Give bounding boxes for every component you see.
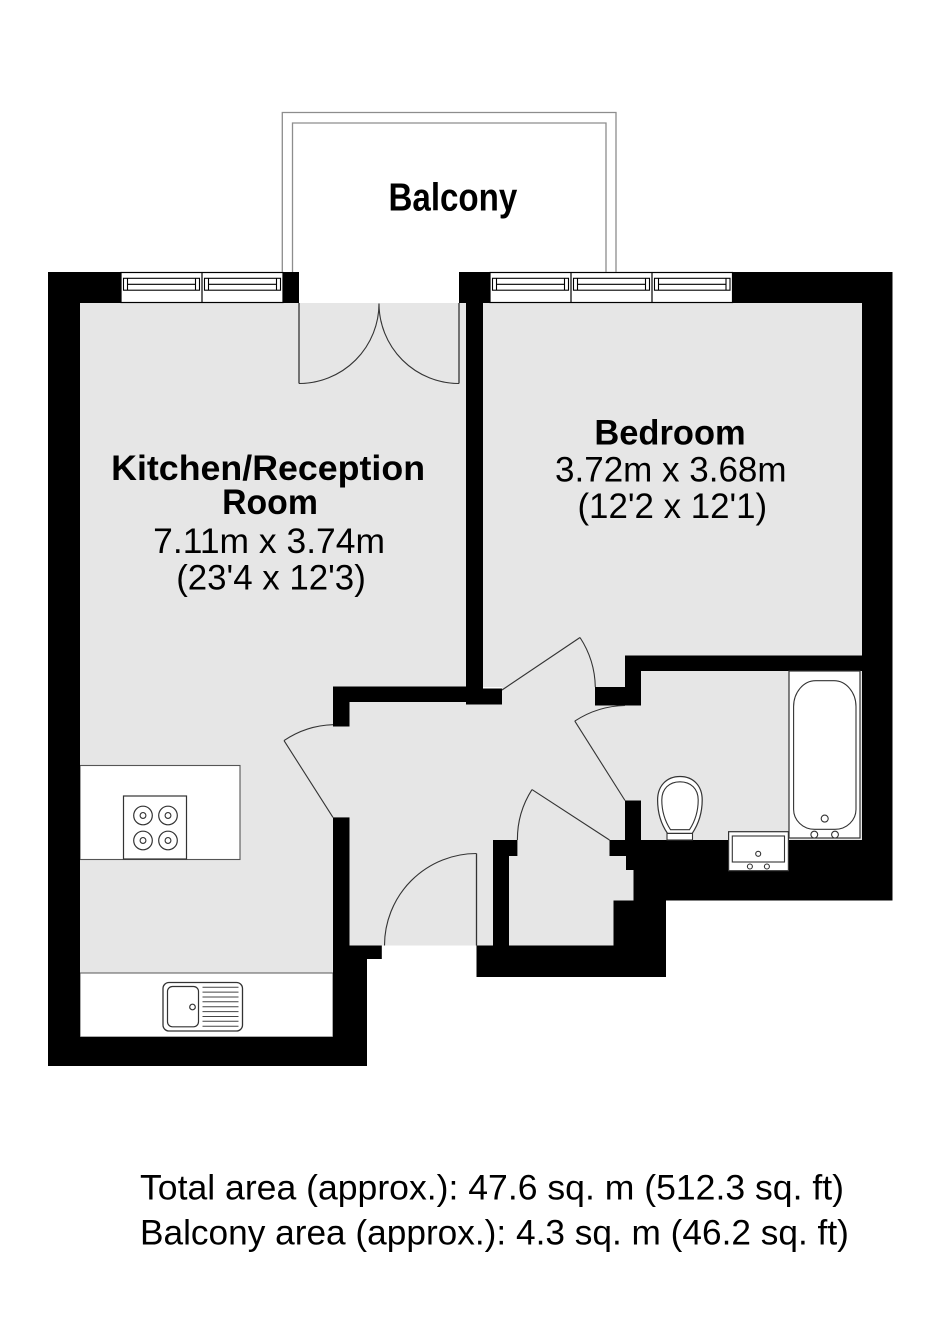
svg-text:3.72m x 3.68m: 3.72m x 3.68m [555, 450, 787, 489]
svg-text:Total area (approx.): 47.6 sq.: Total area (approx.): 47.6 sq. m (512.3 … [140, 1169, 844, 1208]
svg-text:Balcony area (approx.): 4.3 sq: Balcony area (approx.): 4.3 sq. m (46.2 … [140, 1214, 849, 1253]
svg-text:Bedroom: Bedroom [594, 414, 745, 452]
svg-text:Kitchen/Reception: Kitchen/Reception [111, 449, 425, 488]
svg-text:Room: Room [222, 483, 318, 522]
svg-text:Balcony: Balcony [389, 175, 518, 219]
svg-text:7.11m x 3.74m: 7.11m x 3.74m [153, 522, 385, 561]
svg-text:(12'2 x 12'1): (12'2 x 12'1) [577, 487, 767, 526]
svg-text:(23'4 x 12'3): (23'4 x 12'3) [176, 558, 366, 597]
